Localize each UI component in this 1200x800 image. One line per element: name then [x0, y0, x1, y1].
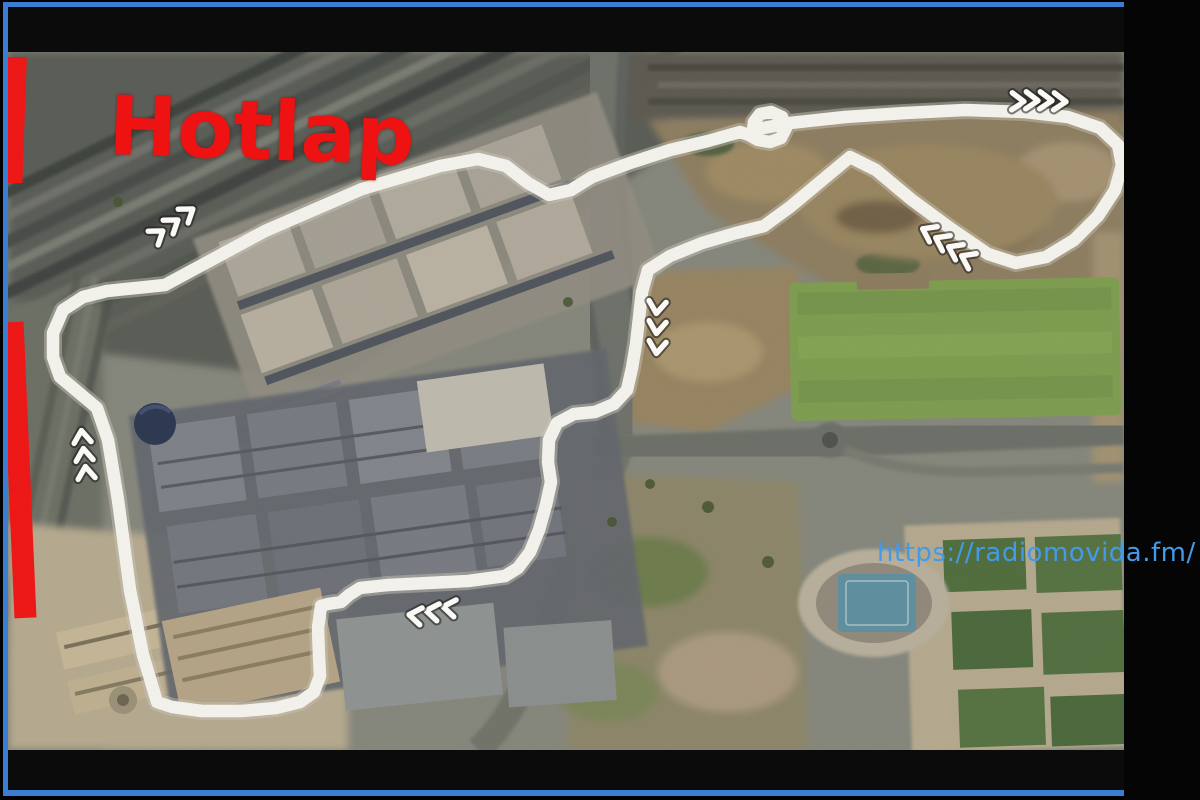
frame-border-top — [3, 2, 1124, 7]
right-black-margin — [1124, 0, 1200, 800]
hotlap-title: Hotlap — [107, 86, 416, 179]
watermark-url: https://radiomovida.fm/ — [877, 538, 1196, 568]
video-frame: Hotlap https://radiomovida.fm/ — [0, 0, 1200, 800]
frame-border-bottom — [3, 790, 1124, 796]
letterbox-top — [8, 7, 1124, 52]
frame-border-left — [3, 2, 8, 796]
letterbox-bottom — [8, 750, 1124, 790]
